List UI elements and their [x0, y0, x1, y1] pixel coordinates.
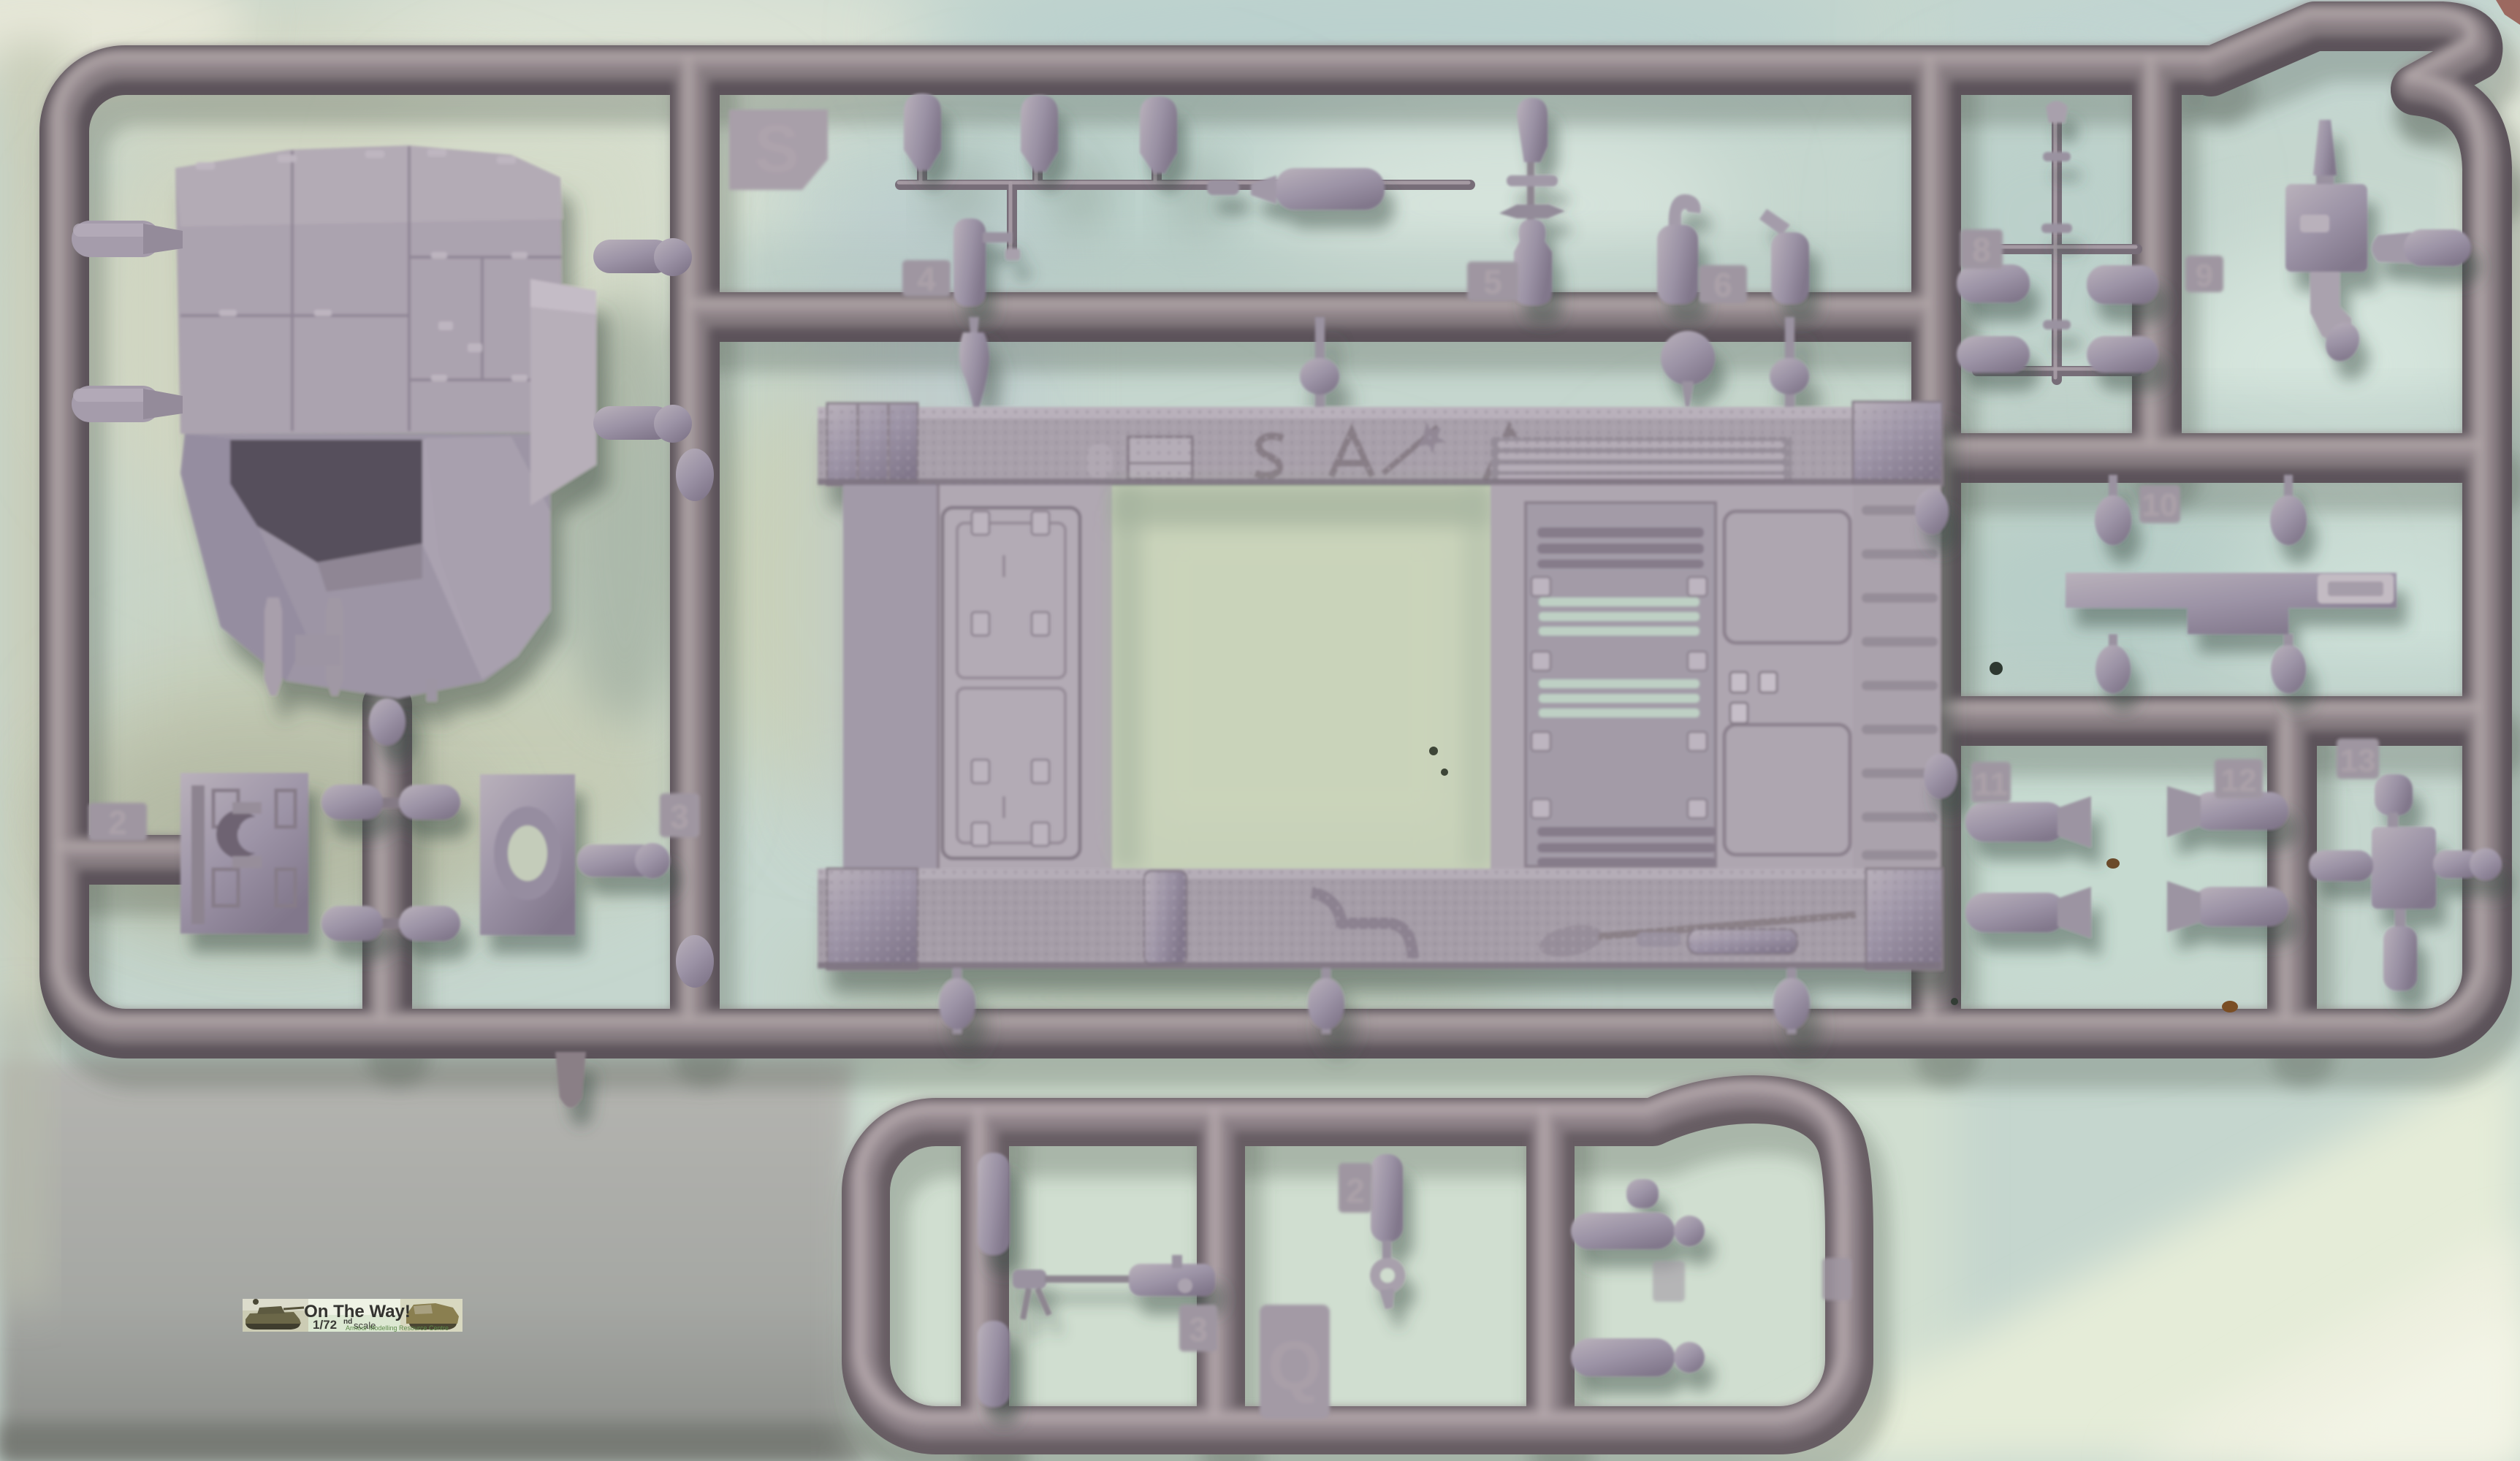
- svg-text:2: 2: [1346, 1172, 1365, 1210]
- svg-text:3: 3: [1189, 1311, 1208, 1349]
- svg-text:10: 10: [2142, 487, 2178, 523]
- svg-text:Q: Q: [1268, 1327, 1322, 1405]
- svg-text:5: 5: [1483, 263, 1502, 301]
- svg-text:S: S: [754, 112, 799, 186]
- svg-text:Armour Modelling Resource Cent: Armour Modelling Resource Centre: [346, 1324, 449, 1332]
- svg-text:2: 2: [108, 804, 127, 842]
- svg-text:3: 3: [670, 798, 689, 836]
- svg-text:13: 13: [2340, 743, 2376, 779]
- svg-text:9: 9: [2196, 258, 2213, 294]
- svg-text:12: 12: [2221, 763, 2257, 798]
- svg-text:1/72: 1/72: [313, 1318, 337, 1332]
- svg-text:8: 8: [1972, 231, 1991, 269]
- svg-text:11: 11: [1974, 766, 2009, 802]
- svg-text:6: 6: [1713, 266, 1732, 304]
- svg-text:4: 4: [917, 260, 936, 298]
